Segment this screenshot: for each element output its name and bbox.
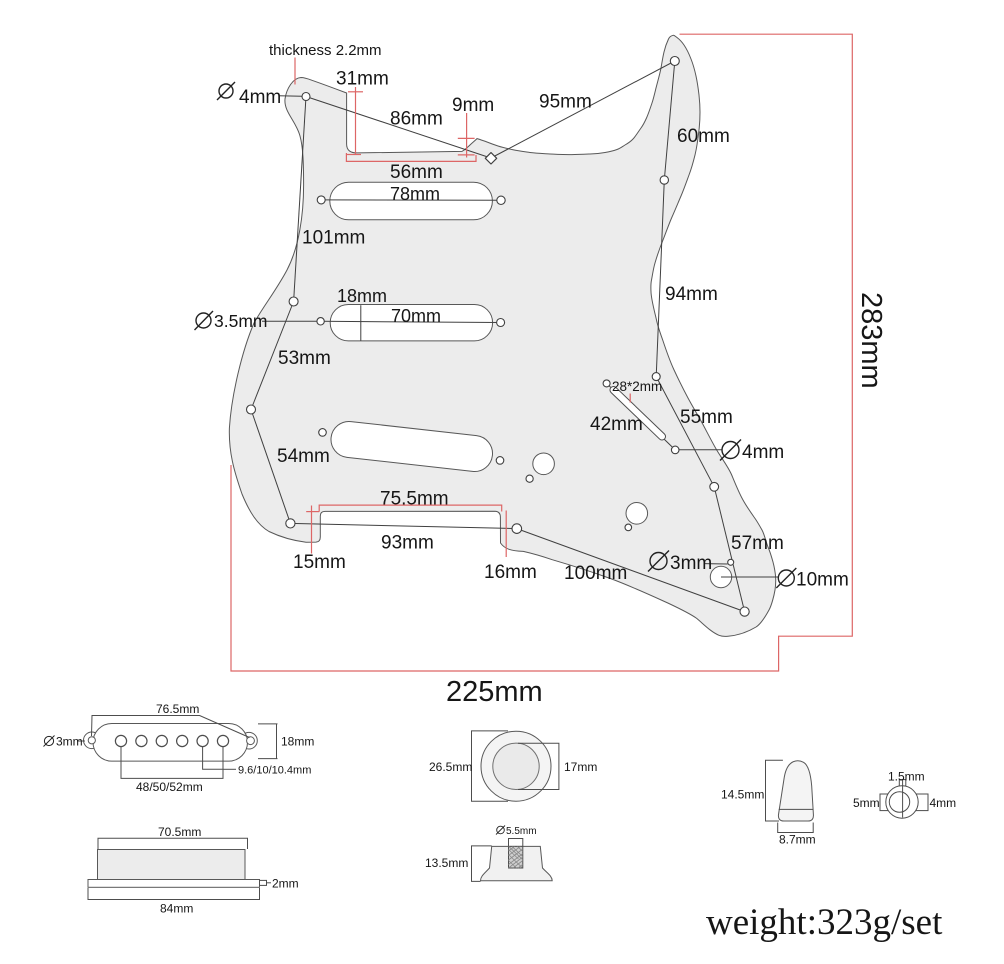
svg-text:28*2mm: 28*2mm [612, 379, 662, 394]
svg-text:31mm: 31mm [336, 69, 389, 90]
svg-text:5.5mm: 5.5mm [506, 826, 537, 837]
svg-text:9.6/10/10.4mm: 9.6/10/10.4mm [238, 765, 311, 777]
svg-text:5mm: 5mm [853, 796, 880, 810]
svg-text:54mm: 54mm [277, 446, 330, 467]
svg-text:84mm: 84mm [160, 902, 193, 916]
svg-text:18mm: 18mm [337, 286, 387, 306]
svg-text:95mm: 95mm [539, 92, 592, 113]
svg-text:70mm: 70mm [391, 306, 441, 326]
svg-text:3.5mm: 3.5mm [214, 311, 267, 331]
svg-text:86mm: 86mm [390, 109, 443, 130]
svg-text:4mm: 4mm [930, 796, 957, 810]
svg-text:225mm: 225mm [446, 676, 543, 708]
svg-text:60mm: 60mm [677, 126, 730, 147]
svg-text:48/50/52mm: 48/50/52mm [136, 780, 203, 794]
svg-text:57mm: 57mm [731, 533, 784, 554]
svg-text:101mm: 101mm [302, 228, 365, 249]
svg-text:3mm: 3mm [670, 553, 712, 574]
svg-text:4mm: 4mm [742, 442, 784, 463]
svg-text:100mm: 100mm [564, 563, 627, 584]
svg-text:weight:323g/set: weight:323g/set [706, 902, 943, 943]
svg-text:76.5mm: 76.5mm [156, 702, 199, 716]
svg-text:2mm: 2mm [272, 877, 299, 891]
svg-text:70.5mm: 70.5mm [158, 825, 201, 839]
svg-text:26.5mm: 26.5mm [429, 760, 472, 774]
svg-text:8.7mm: 8.7mm [779, 833, 816, 847]
svg-text:56mm: 56mm [390, 162, 443, 183]
svg-text:53mm: 53mm [278, 348, 331, 369]
svg-text:9mm: 9mm [452, 95, 494, 116]
svg-text:55mm: 55mm [680, 407, 733, 428]
svg-text:4mm: 4mm [239, 87, 281, 108]
svg-text:42mm: 42mm [590, 414, 643, 435]
svg-text:1.5mm: 1.5mm [888, 770, 925, 784]
svg-text:3mm: 3mm [56, 735, 83, 749]
svg-text:10mm: 10mm [796, 570, 849, 591]
svg-text:14.5mm: 14.5mm [721, 788, 764, 802]
svg-text:15mm: 15mm [293, 552, 346, 573]
svg-text:78mm: 78mm [390, 184, 440, 204]
svg-text:thickness 2.2mm: thickness 2.2mm [269, 42, 382, 59]
svg-text:283mm: 283mm [855, 292, 887, 389]
svg-text:75.5mm: 75.5mm [380, 489, 449, 510]
svg-text:93mm: 93mm [381, 533, 434, 554]
svg-text:18mm: 18mm [281, 735, 314, 749]
svg-text:13.5mm: 13.5mm [425, 856, 468, 870]
svg-text:17mm: 17mm [564, 760, 597, 774]
svg-text:16mm: 16mm [484, 562, 537, 583]
svg-text:94mm: 94mm [665, 284, 718, 305]
